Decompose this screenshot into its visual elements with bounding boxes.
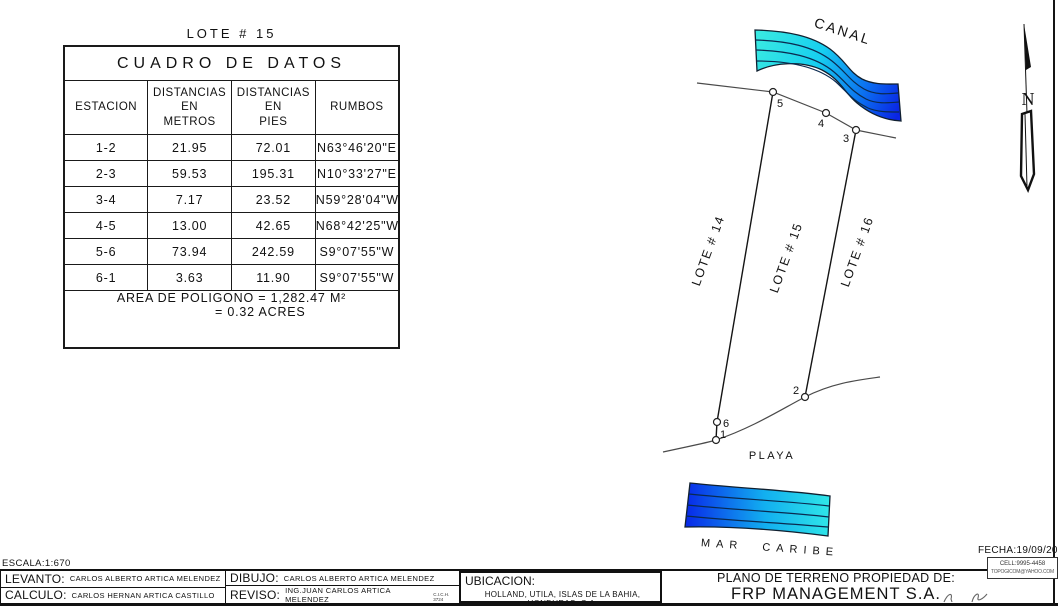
north-letter: N <box>1022 89 1035 109</box>
station-label-4: 4 <box>818 118 824 130</box>
table-cell: 42.65 <box>232 213 316 239</box>
table-row: 5-673.94242.59S9°07'55"W <box>64 239 399 265</box>
canal-label: CANAL <box>812 14 873 48</box>
plano-line2: FRP MANAGEMENT S.A. <box>731 585 941 604</box>
table-cell: N63°46'20"E <box>315 135 399 161</box>
calculo-row: CALCULO: CARLOS HERNAN ARTICA CASTILLO <box>1 588 225 604</box>
table-cell: N68°42'25"W <box>315 213 399 239</box>
cuadro-de-datos-table: CUADRO DE DATOS ESTACION DISTANCIAS EN M… <box>63 45 400 349</box>
levanto-label: LEVANTO: <box>5 572 65 586</box>
table-cell: S9°07'55"W <box>315 239 399 265</box>
boundary-line-5-6-1 <box>716 92 773 440</box>
station-marker-5 <box>770 89 777 96</box>
station-label-5: 5 <box>777 98 783 110</box>
site-plan-drawing: CANAL 5 4 3 2 6 1 LOTE # 14 LOTE # <box>640 0 1058 565</box>
table-row: 6-13.6311.90S9°07'55"W <box>64 265 399 291</box>
table-cell: 73.94 <box>148 239 232 265</box>
table-cell: 2-3 <box>64 161 148 187</box>
table-row: 4-513.0042.65N68°42'25"W <box>64 213 399 239</box>
sea-water <box>685 483 830 536</box>
table-cell: 6-1 <box>64 265 148 291</box>
station-label-2: 2 <box>793 385 799 397</box>
ubicacion-label: UBICACION: <box>465 574 660 588</box>
shoreline <box>663 377 880 452</box>
lot-labels: LOTE # 14 LOTE # 15 LOTE # 16 <box>689 213 876 294</box>
station-marker-2 <box>802 394 809 401</box>
table-row: 2-359.53195.31N10°33'27"E <box>64 161 399 187</box>
table-header-row: ESTACION DISTANCIAS EN METROS DISTANCIAS… <box>64 81 399 135</box>
calculo-label: CALCULO: <box>5 588 67 602</box>
reviso-row: REVISO: ING.JUAN CARLOS ARTICA MELENDEZ … <box>226 586 459 604</box>
levanto-value: CARLOS ALBERTO ARTICA MELENDEZ <box>70 574 221 583</box>
table-cell: 3-4 <box>64 187 148 213</box>
table-cell: N59°28'04"W <box>315 187 399 213</box>
lot-label-16: LOTE # 16 <box>838 214 876 288</box>
table-title: CUADRO DE DATOS <box>64 46 399 81</box>
signature-mark <box>938 590 1018 603</box>
station-marker-1 <box>713 437 720 444</box>
table-title-row: CUADRO DE DATOS <box>64 46 399 81</box>
station-label-3: 3 <box>843 133 849 145</box>
table-row: 3-47.1723.52N59°28'04"W <box>64 187 399 213</box>
table-cell: N10°33'27"E <box>315 161 399 187</box>
survey-plan-sheet: LOTE # 15 CUADRO DE DATOS ESTACION DISTA… <box>0 0 1058 606</box>
station-marker-3 <box>853 127 860 134</box>
reviso-value: ING.JUAN CARLOS ARTICA MELENDEZ <box>285 586 428 604</box>
header-distancias-pies: DISTANCIAS EN PIES <box>232 81 316 135</box>
table-cell: 7.17 <box>148 187 232 213</box>
calculo-value: CARLOS HERNAN ARTICA CASTILLO <box>72 591 215 600</box>
area-row: AREA DE POLIGONO = 1,282.47 M² = 0.32 AC… <box>64 291 399 349</box>
table-cell: 72.01 <box>232 135 316 161</box>
dibujo-value: CARLOS ALBERTO ARTICA MELENDEZ <box>284 574 435 583</box>
table-cell: 242.59 <box>232 239 316 265</box>
station-label-1: 1 <box>720 429 726 441</box>
reviso-note: C.I.C.H. 3724 <box>433 592 459 604</box>
dibujo-row: DIBUJO: CARLOS ALBERTO ARTICA MELENDEZ <box>226 571 459 586</box>
table-cell: 23.52 <box>232 187 316 213</box>
contact-email: TOPOGICOM@YAHOO.COM <box>991 569 1054 575</box>
table-cell: S9°07'55"W <box>315 265 399 291</box>
area-line2: = 0.32 ACRES <box>215 305 398 319</box>
dibujo-label: DIBUJO: <box>230 571 279 585</box>
lot-label-14: LOTE # 14 <box>689 213 727 287</box>
table-cell: 13.00 <box>148 213 232 239</box>
table-cell: 11.90 <box>232 265 316 291</box>
header-rumbos: RUMBOS <box>315 81 399 135</box>
playa-label: PLAYA <box>749 450 795 462</box>
station-marker-4 <box>823 110 830 117</box>
table-cell: 1-2 <box>64 135 148 161</box>
lot-title: LOTE # 15 <box>63 26 400 41</box>
page-right-border <box>1053 0 1055 606</box>
north-arrow: N <box>1021 24 1035 190</box>
title-block: LEVANTO: CARLOS ALBERTO ARTICA MELENDEZ … <box>0 569 1058 606</box>
header-estacion: ESTACION <box>64 81 148 135</box>
table-cell: 3.63 <box>148 265 232 291</box>
table-cell: 21.95 <box>148 135 232 161</box>
table-cell: 195.31 <box>232 161 316 187</box>
scale-text: ESCALA:1:670 <box>2 558 71 569</box>
plano-line1: PLANO DE TERRENO PROPIEDAD DE: <box>717 571 955 585</box>
levanto-row: LEVANTO: CARLOS ALBERTO ARTICA MELENDEZ <box>1 571 225 588</box>
sea-band <box>685 483 830 536</box>
table-row: 1-221.9572.01N63°46'20"E <box>64 135 399 161</box>
lot-label-15: LOTE # 15 <box>767 220 805 294</box>
title-block-col2: DIBUJO: CARLOS ALBERTO ARTICA MELENDEZ R… <box>226 571 459 603</box>
ubicacion-value: HOLLAND, UTILA, ISLAS DE LA BAHIA, HONDU… <box>465 590 660 606</box>
north-arrow-tail <box>1021 111 1034 190</box>
reviso-label: REVISO: <box>230 588 280 602</box>
table-cell: 59.53 <box>148 161 232 187</box>
header-distancias-metros: DISTANCIAS EN METROS <box>148 81 232 135</box>
station-marker-6 <box>714 419 721 426</box>
sea-label: MAR CARIBE <box>701 537 840 559</box>
table-body: 1-221.9572.01N63°46'20"E2-359.53195.31N1… <box>64 135 399 291</box>
table-cell: 4-5 <box>64 213 148 239</box>
table-cell: 5-6 <box>64 239 148 265</box>
date-text: FECHA:19/09/2023 <box>978 545 1058 556</box>
contact-box: CELL:9995-4458 TOPOGICOM@YAHOO.COM <box>987 557 1058 579</box>
contact-cell: CELL:9995-4458 <box>1000 561 1045 569</box>
title-block-col1: LEVANTO: CARLOS ALBERTO ARTICA MELENDEZ … <box>1 571 226 603</box>
area-cell: AREA DE POLIGONO = 1,282.47 M² = 0.32 AC… <box>64 291 399 349</box>
area-line1: AREA DE POLIGONO = 1,282.47 M² <box>65 291 398 305</box>
ubicacion-box: UBICACION: HOLLAND, UTILA, ISLAS DE LA B… <box>459 571 662 603</box>
